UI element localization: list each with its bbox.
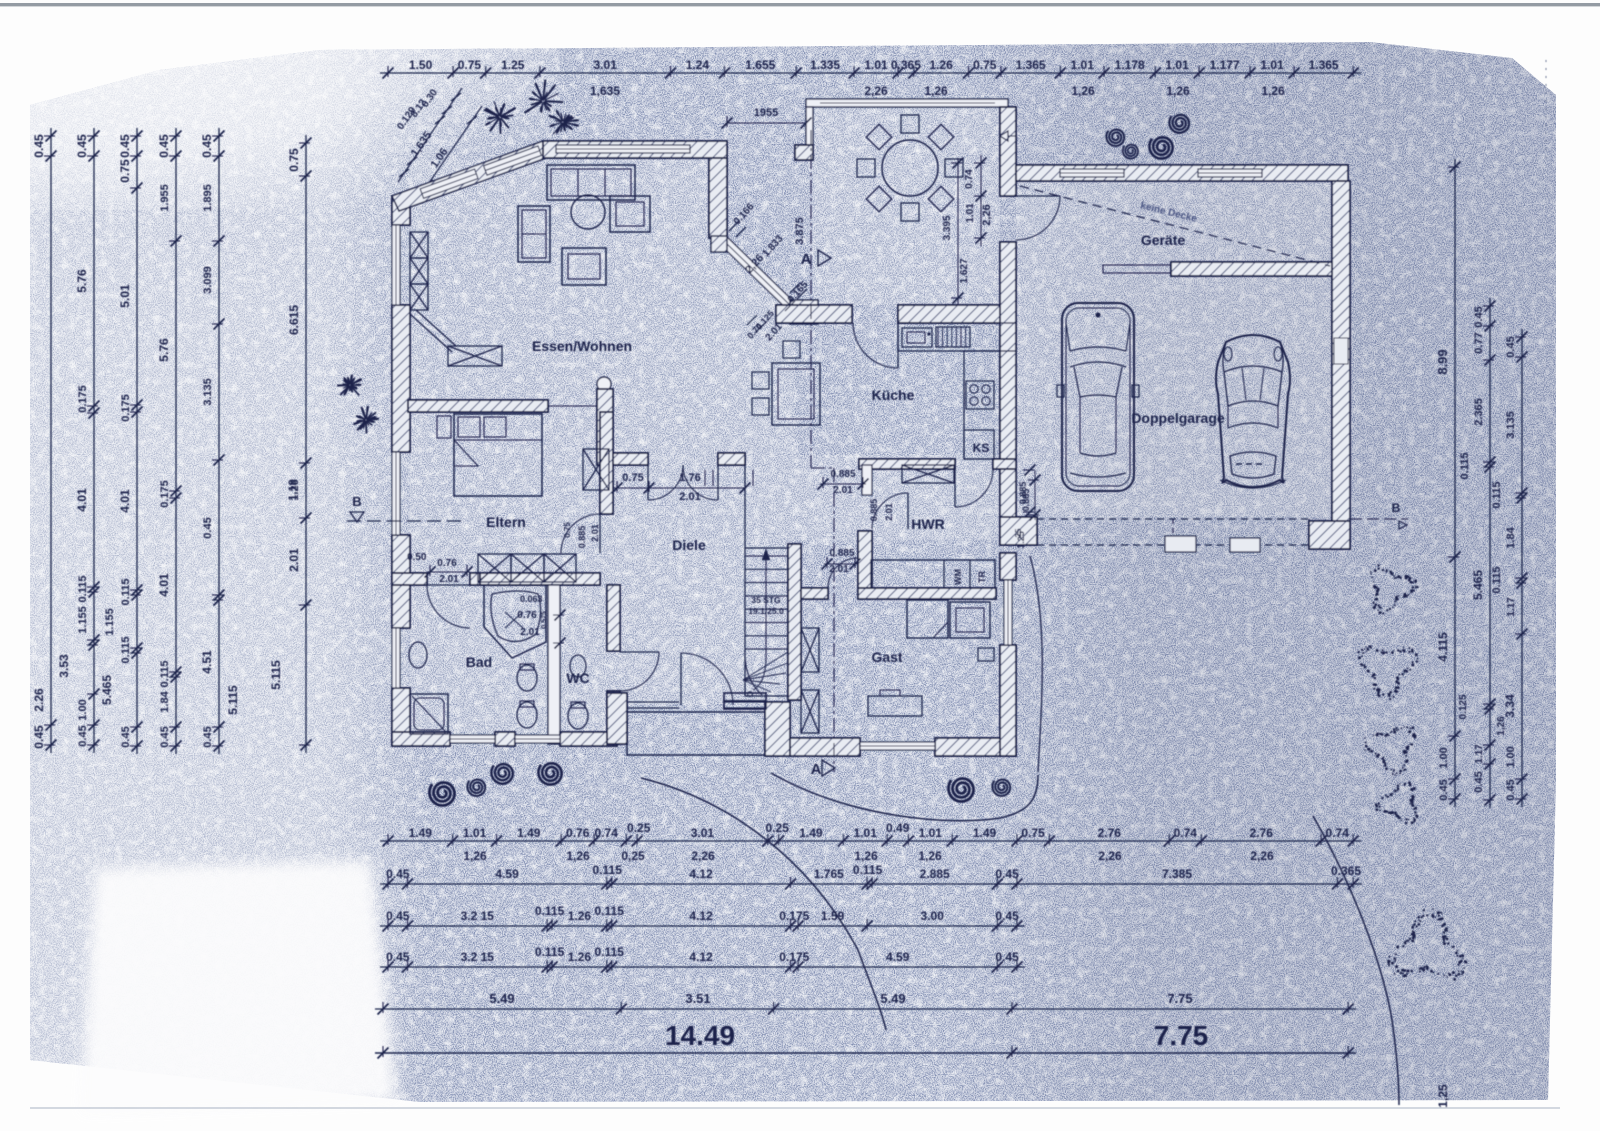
- svg-text:7.75: 7.75: [1154, 1020, 1209, 1051]
- svg-text:1.49: 1.49: [409, 826, 433, 840]
- svg-text:3.53: 3.53: [57, 654, 71, 678]
- svg-text:1.50: 1.50: [409, 58, 433, 72]
- svg-text:0.75: 0.75: [1021, 826, 1045, 840]
- svg-text:0.76: 0.76: [437, 558, 457, 569]
- svg-text:0.365: 0.365: [891, 58, 921, 72]
- svg-text:1.26: 1.26: [568, 909, 592, 923]
- svg-text:3.00: 3.00: [921, 909, 945, 923]
- svg-text:1.155: 1.155: [104, 608, 116, 636]
- svg-text:0.25: 0.25: [766, 821, 790, 835]
- svg-text:3.099: 3.099: [202, 266, 214, 294]
- svg-text:5.115: 5.115: [226, 685, 240, 715]
- svg-text:0.885: 0.885: [1018, 482, 1028, 505]
- svg-text:1.49: 1.49: [799, 826, 823, 840]
- svg-text:0.45: 0.45: [1473, 771, 1485, 792]
- svg-text:0.45: 0.45: [1473, 306, 1485, 327]
- svg-text:1,26: 1,26: [1261, 84, 1285, 98]
- svg-text:B: B: [1392, 501, 1401, 515]
- svg-text:1.00: 1.00: [1438, 747, 1450, 768]
- svg-text:2,26: 2,26: [1250, 849, 1274, 863]
- svg-text:Essen/Wohnen: Essen/Wohnen: [532, 338, 632, 354]
- svg-text:Geräte: Geräte: [1141, 232, 1186, 248]
- svg-text:0.45: 0.45: [995, 909, 1019, 923]
- svg-text:2.01: 2.01: [884, 503, 894, 521]
- svg-text:2.01: 2.01: [833, 485, 853, 496]
- svg-text:4.12: 4.12: [689, 909, 713, 923]
- svg-text:1.627: 1.627: [959, 258, 970, 283]
- svg-text:2.01: 2.01: [679, 491, 700, 503]
- svg-text:0.45: 0.45: [202, 517, 214, 538]
- svg-text:1.365: 1.365: [1309, 58, 1339, 72]
- svg-text:0.49: 0.49: [886, 821, 910, 835]
- svg-text:WC: WC: [566, 670, 589, 686]
- svg-text:0.74: 0.74: [595, 826, 619, 840]
- svg-text:1,26: 1,26: [1496, 716, 1507, 736]
- svg-text:1,26: 1,26: [566, 849, 590, 863]
- svg-text:1.155: 1.155: [77, 606, 89, 634]
- svg-text:1.84: 1.84: [1505, 526, 1517, 548]
- svg-text:Doppelgarage: Doppelgarage: [1131, 410, 1225, 426]
- svg-text:0.885: 0.885: [830, 469, 855, 480]
- svg-text:1.17: 1.17: [1474, 744, 1485, 764]
- svg-text:2.885: 2.885: [920, 867, 950, 881]
- svg-text:0.175: 0.175: [779, 950, 809, 964]
- svg-text:2,26: 2,26: [691, 849, 715, 863]
- svg-text:1.00: 1.00: [77, 699, 89, 720]
- svg-text:0.115: 0.115: [535, 945, 565, 959]
- svg-text:A: A: [811, 761, 822, 778]
- svg-text:4.51: 4.51: [200, 650, 214, 674]
- svg-text:WM: WM: [953, 569, 963, 585]
- svg-text:1.765: 1.765: [814, 867, 844, 881]
- svg-text:4.01: 4.01: [157, 573, 171, 597]
- svg-text:5.115: 5.115: [269, 660, 283, 690]
- svg-text:Eltern: Eltern: [486, 514, 526, 530]
- svg-text:0.885: 0.885: [577, 526, 587, 549]
- svg-text:0.75: 0.75: [118, 159, 132, 183]
- svg-text:Küche: Küche: [872, 387, 915, 403]
- svg-text:0.115: 0.115: [595, 945, 625, 959]
- svg-text:2.01: 2.01: [590, 524, 600, 542]
- svg-text:0.75: 0.75: [973, 58, 997, 72]
- svg-text:1.01: 1.01: [1260, 58, 1284, 72]
- svg-text:2.01: 2.01: [287, 548, 301, 572]
- svg-text:0.115: 0.115: [1459, 453, 1471, 480]
- svg-text:0.885: 0.885: [869, 499, 879, 522]
- svg-text:3.135: 3.135: [202, 378, 214, 406]
- svg-text:Diele: Diele: [672, 537, 706, 553]
- svg-text:1.895: 1.895: [202, 184, 214, 212]
- svg-text:0.45: 0.45: [995, 867, 1019, 881]
- svg-text:8.99: 8.99: [1435, 349, 1450, 374]
- svg-text:1,26: 1,26: [924, 84, 948, 98]
- svg-text:0.45: 0.45: [77, 725, 89, 746]
- svg-text:25: 25: [1014, 528, 1023, 537]
- svg-text:4.01: 4.01: [75, 488, 89, 512]
- svg-text:2.01: 2.01: [520, 627, 540, 638]
- svg-text:1.49: 1.49: [517, 826, 541, 840]
- svg-text:5.49: 5.49: [489, 991, 514, 1006]
- svg-text:1.01: 1.01: [864, 58, 888, 72]
- svg-text:1.365: 1.365: [1016, 58, 1046, 72]
- svg-text:0.45: 0.45: [120, 726, 132, 747]
- svg-text:5.76: 5.76: [157, 338, 171, 362]
- svg-text:HWR: HWR: [911, 516, 944, 532]
- svg-text:5.49: 5.49: [880, 991, 905, 1006]
- svg-text:0.25: 0.25: [627, 821, 651, 835]
- svg-text:KS: KS: [973, 441, 990, 455]
- svg-text:4.59: 4.59: [495, 867, 519, 881]
- svg-text:0.175: 0.175: [779, 909, 809, 923]
- svg-text:2.01: 2.01: [829, 564, 849, 575]
- svg-text:0.885: 0.885: [829, 548, 854, 559]
- svg-text:0.75: 0.75: [458, 58, 482, 72]
- svg-text:2.76: 2.76: [1250, 826, 1274, 840]
- svg-text:1955: 1955: [754, 107, 778, 119]
- svg-text:3.875: 3.875: [794, 217, 806, 245]
- svg-text:0.45: 0.45: [1438, 779, 1450, 800]
- svg-text:2.365: 2.365: [1473, 398, 1485, 426]
- svg-text:5.465: 5.465: [100, 675, 114, 705]
- svg-text:1,19: 1,19: [287, 479, 299, 500]
- svg-text:0.45: 0.45: [386, 950, 410, 964]
- svg-text:0.45: 0.45: [200, 134, 214, 158]
- svg-text:0.45: 0.45: [32, 134, 46, 158]
- svg-text:B: B: [352, 494, 361, 509]
- svg-text:14.49: 14.49: [665, 1020, 735, 1051]
- svg-text:3.01: 3.01: [594, 58, 618, 72]
- svg-text:5.01: 5.01: [118, 284, 132, 308]
- svg-text:0.063: 0.063: [520, 594, 543, 604]
- svg-text:4.01: 4.01: [118, 489, 132, 513]
- svg-text:1.17: 1.17: [1506, 597, 1517, 617]
- svg-text:2.01: 2.01: [439, 574, 459, 585]
- svg-text:0.115: 0.115: [120, 637, 132, 664]
- svg-text:1.01: 1.01: [854, 826, 878, 840]
- svg-text:1.00: 1.00: [1505, 746, 1517, 767]
- svg-text:5.76: 5.76: [75, 269, 89, 293]
- svg-text:0.75: 0.75: [622, 472, 643, 484]
- svg-text:0.45: 0.45: [118, 134, 132, 158]
- svg-text:0.115: 0.115: [535, 904, 565, 918]
- svg-text:0.50: 0.50: [407, 552, 427, 563]
- svg-text:0.115: 0.115: [1491, 482, 1503, 509]
- svg-text:0.74: 0.74: [1174, 826, 1198, 840]
- svg-text:A: A: [801, 251, 812, 268]
- svg-text:35 STG: 35 STG: [751, 595, 781, 605]
- svg-text:1.24: 1.24: [686, 58, 710, 72]
- svg-text:3.2 15: 3.2 15: [461, 909, 495, 923]
- svg-text:2.76: 2.76: [1098, 826, 1122, 840]
- svg-text:1.01: 1.01: [919, 826, 943, 840]
- svg-text:0.125: 0.125: [1458, 694, 1469, 719]
- svg-text:1.01: 1.01: [1071, 58, 1095, 72]
- svg-text:0.45: 0.45: [157, 134, 171, 158]
- svg-text:1.76: 1.76: [679, 472, 700, 484]
- svg-text:3.135: 3.135: [1505, 411, 1517, 439]
- svg-text:0.115: 0.115: [159, 661, 171, 688]
- svg-text:0.45: 0.45: [1505, 779, 1517, 800]
- svg-text:2,26: 2,26: [981, 204, 993, 225]
- svg-text:3.34: 3.34: [1503, 694, 1517, 718]
- svg-text:0.115: 0.115: [1491, 567, 1503, 594]
- svg-text:2.26: 2.26: [32, 688, 46, 712]
- svg-text:1.25: 1.25: [501, 58, 525, 72]
- svg-text:0.75: 0.75: [287, 148, 301, 172]
- svg-text:1.49: 1.49: [973, 826, 997, 840]
- svg-text:3.2 15: 3.2 15: [461, 950, 495, 964]
- svg-text:7.385: 7.385: [1162, 867, 1192, 881]
- svg-text:0.76: 0.76: [566, 826, 590, 840]
- svg-text:0.45: 0.45: [75, 134, 89, 158]
- svg-text:1,26: 1,26: [1166, 84, 1190, 98]
- svg-text:0.115: 0.115: [77, 576, 89, 603]
- svg-text:1.178: 1.178: [1115, 58, 1145, 72]
- svg-text:1,635: 1,635: [590, 84, 620, 98]
- svg-text:1.84: 1.84: [159, 690, 171, 712]
- svg-text:0.74: 0.74: [1326, 826, 1350, 840]
- svg-text:1,26: 1,26: [854, 849, 878, 863]
- svg-text:Gast: Gast: [871, 649, 902, 665]
- svg-text:TR: TR: [977, 571, 987, 583]
- svg-text:0.115: 0.115: [120, 579, 132, 606]
- svg-text:1.01: 1.01: [1165, 58, 1189, 72]
- svg-text:1.01: 1.01: [463, 826, 487, 840]
- svg-text:6.615: 6.615: [287, 305, 301, 335]
- svg-text:0.76: 0.76: [517, 610, 537, 621]
- svg-text:7.75: 7.75: [1167, 991, 1192, 1006]
- svg-text:4.59: 4.59: [886, 950, 910, 964]
- svg-text:3.395: 3.395: [942, 215, 953, 240]
- svg-text:0.77: 0.77: [1473, 332, 1485, 353]
- svg-text:0,25: 0,25: [621, 849, 645, 863]
- svg-text:0.45: 0.45: [386, 867, 410, 881]
- svg-text:0.45: 0.45: [202, 726, 214, 747]
- svg-text:0.45: 0.45: [1505, 336, 1517, 357]
- svg-text:Bad: Bad: [466, 654, 492, 670]
- svg-text:1.26: 1.26: [568, 950, 592, 964]
- svg-text:2,26: 2,26: [1098, 849, 1122, 863]
- svg-text:1.01: 1.01: [965, 203, 976, 223]
- svg-text:1,26: 1,26: [918, 849, 942, 863]
- svg-text:0.115: 0.115: [853, 863, 883, 877]
- svg-text:4.12: 4.12: [689, 950, 713, 964]
- svg-text:0.74: 0.74: [964, 169, 975, 189]
- svg-text:3.51: 3.51: [685, 991, 710, 1006]
- svg-text:1.26: 1.26: [929, 58, 953, 72]
- svg-text:4.115: 4.115: [1436, 632, 1450, 662]
- svg-text:0.45: 0.45: [159, 726, 171, 747]
- svg-text:1.177: 1.177: [1210, 58, 1240, 72]
- svg-text:0.75: 0.75: [563, 522, 572, 538]
- svg-text:1.655: 1.655: [745, 58, 775, 72]
- svg-text:19.1/25.0: 19.1/25.0: [748, 606, 784, 616]
- svg-text:0.45: 0.45: [32, 725, 46, 749]
- svg-text:0.175: 0.175: [159, 480, 171, 508]
- svg-text:1.955: 1.955: [159, 184, 171, 212]
- svg-text:0.365: 0.365: [1331, 864, 1361, 878]
- svg-text:1,26: 1,26: [463, 849, 487, 863]
- svg-text:0.115: 0.115: [593, 863, 623, 877]
- svg-text:0.175: 0.175: [120, 394, 132, 422]
- svg-text:0.45: 0.45: [995, 950, 1019, 964]
- svg-text:3.01: 3.01: [691, 826, 715, 840]
- svg-text:2,26: 2,26: [864, 84, 888, 98]
- svg-text:1,25: 1,25: [1436, 1084, 1450, 1108]
- svg-text:1.335: 1.335: [810, 58, 840, 72]
- svg-text:0.175: 0.175: [77, 385, 89, 413]
- svg-text:4.12: 4.12: [689, 867, 713, 881]
- svg-text:1,26: 1,26: [1071, 84, 1095, 98]
- svg-text:0.575: 0.575: [541, 611, 548, 629]
- svg-text:0.115: 0.115: [595, 904, 625, 918]
- svg-text:0.45: 0.45: [386, 909, 410, 923]
- svg-text:5.465: 5.465: [1471, 570, 1485, 600]
